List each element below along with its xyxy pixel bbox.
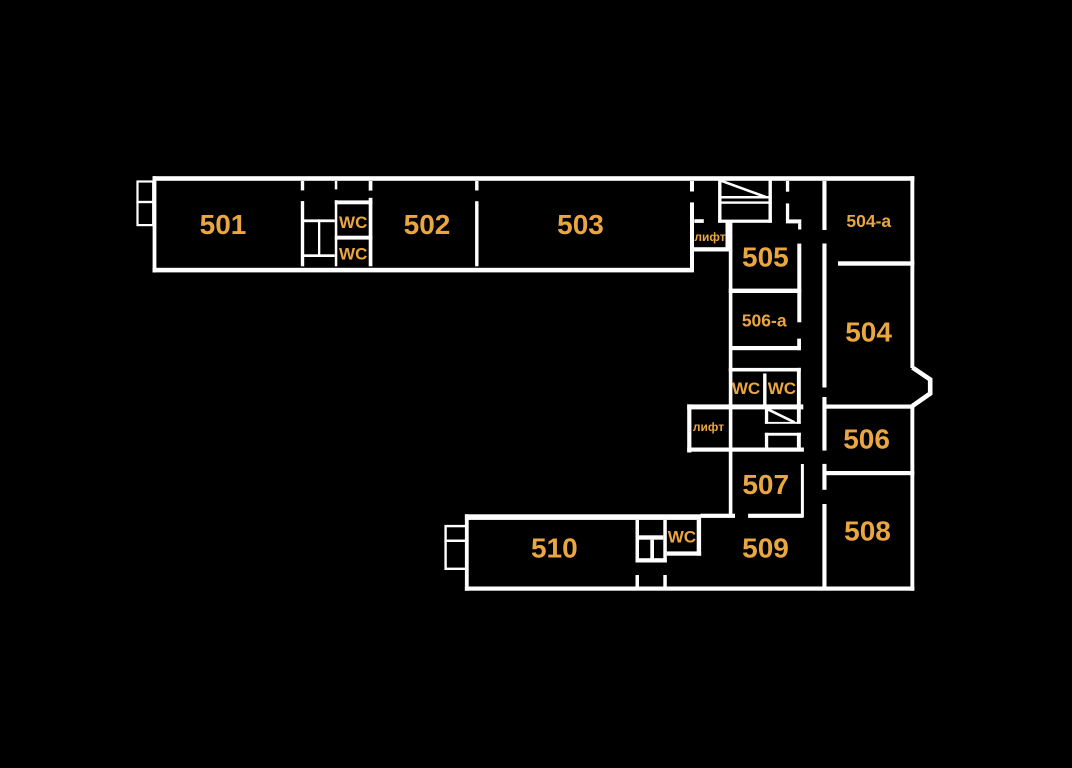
svg-text:508: 508 <box>844 516 891 547</box>
svg-text:504-а: 504-а <box>846 211 891 231</box>
svg-text:506: 506 <box>843 424 890 455</box>
svg-text:502: 502 <box>404 209 451 240</box>
svg-text:WC: WC <box>339 245 367 264</box>
svg-text:505: 505 <box>742 242 789 273</box>
svg-text:WC: WC <box>668 528 696 547</box>
svg-text:509: 509 <box>742 533 789 564</box>
svg-text:лифт: лифт <box>693 420 724 434</box>
svg-text:503: 503 <box>557 209 604 240</box>
svg-text:WC: WC <box>732 379 760 398</box>
svg-text:WC: WC <box>339 213 367 232</box>
svg-text:507: 507 <box>742 469 789 500</box>
svg-text:лифт: лифт <box>694 230 725 244</box>
svg-text:501: 501 <box>200 209 247 240</box>
svg-text:510: 510 <box>531 533 578 564</box>
svg-text:504: 504 <box>845 317 892 348</box>
svg-text:WC: WC <box>768 379 796 398</box>
svg-text:506-а: 506-а <box>742 311 787 331</box>
